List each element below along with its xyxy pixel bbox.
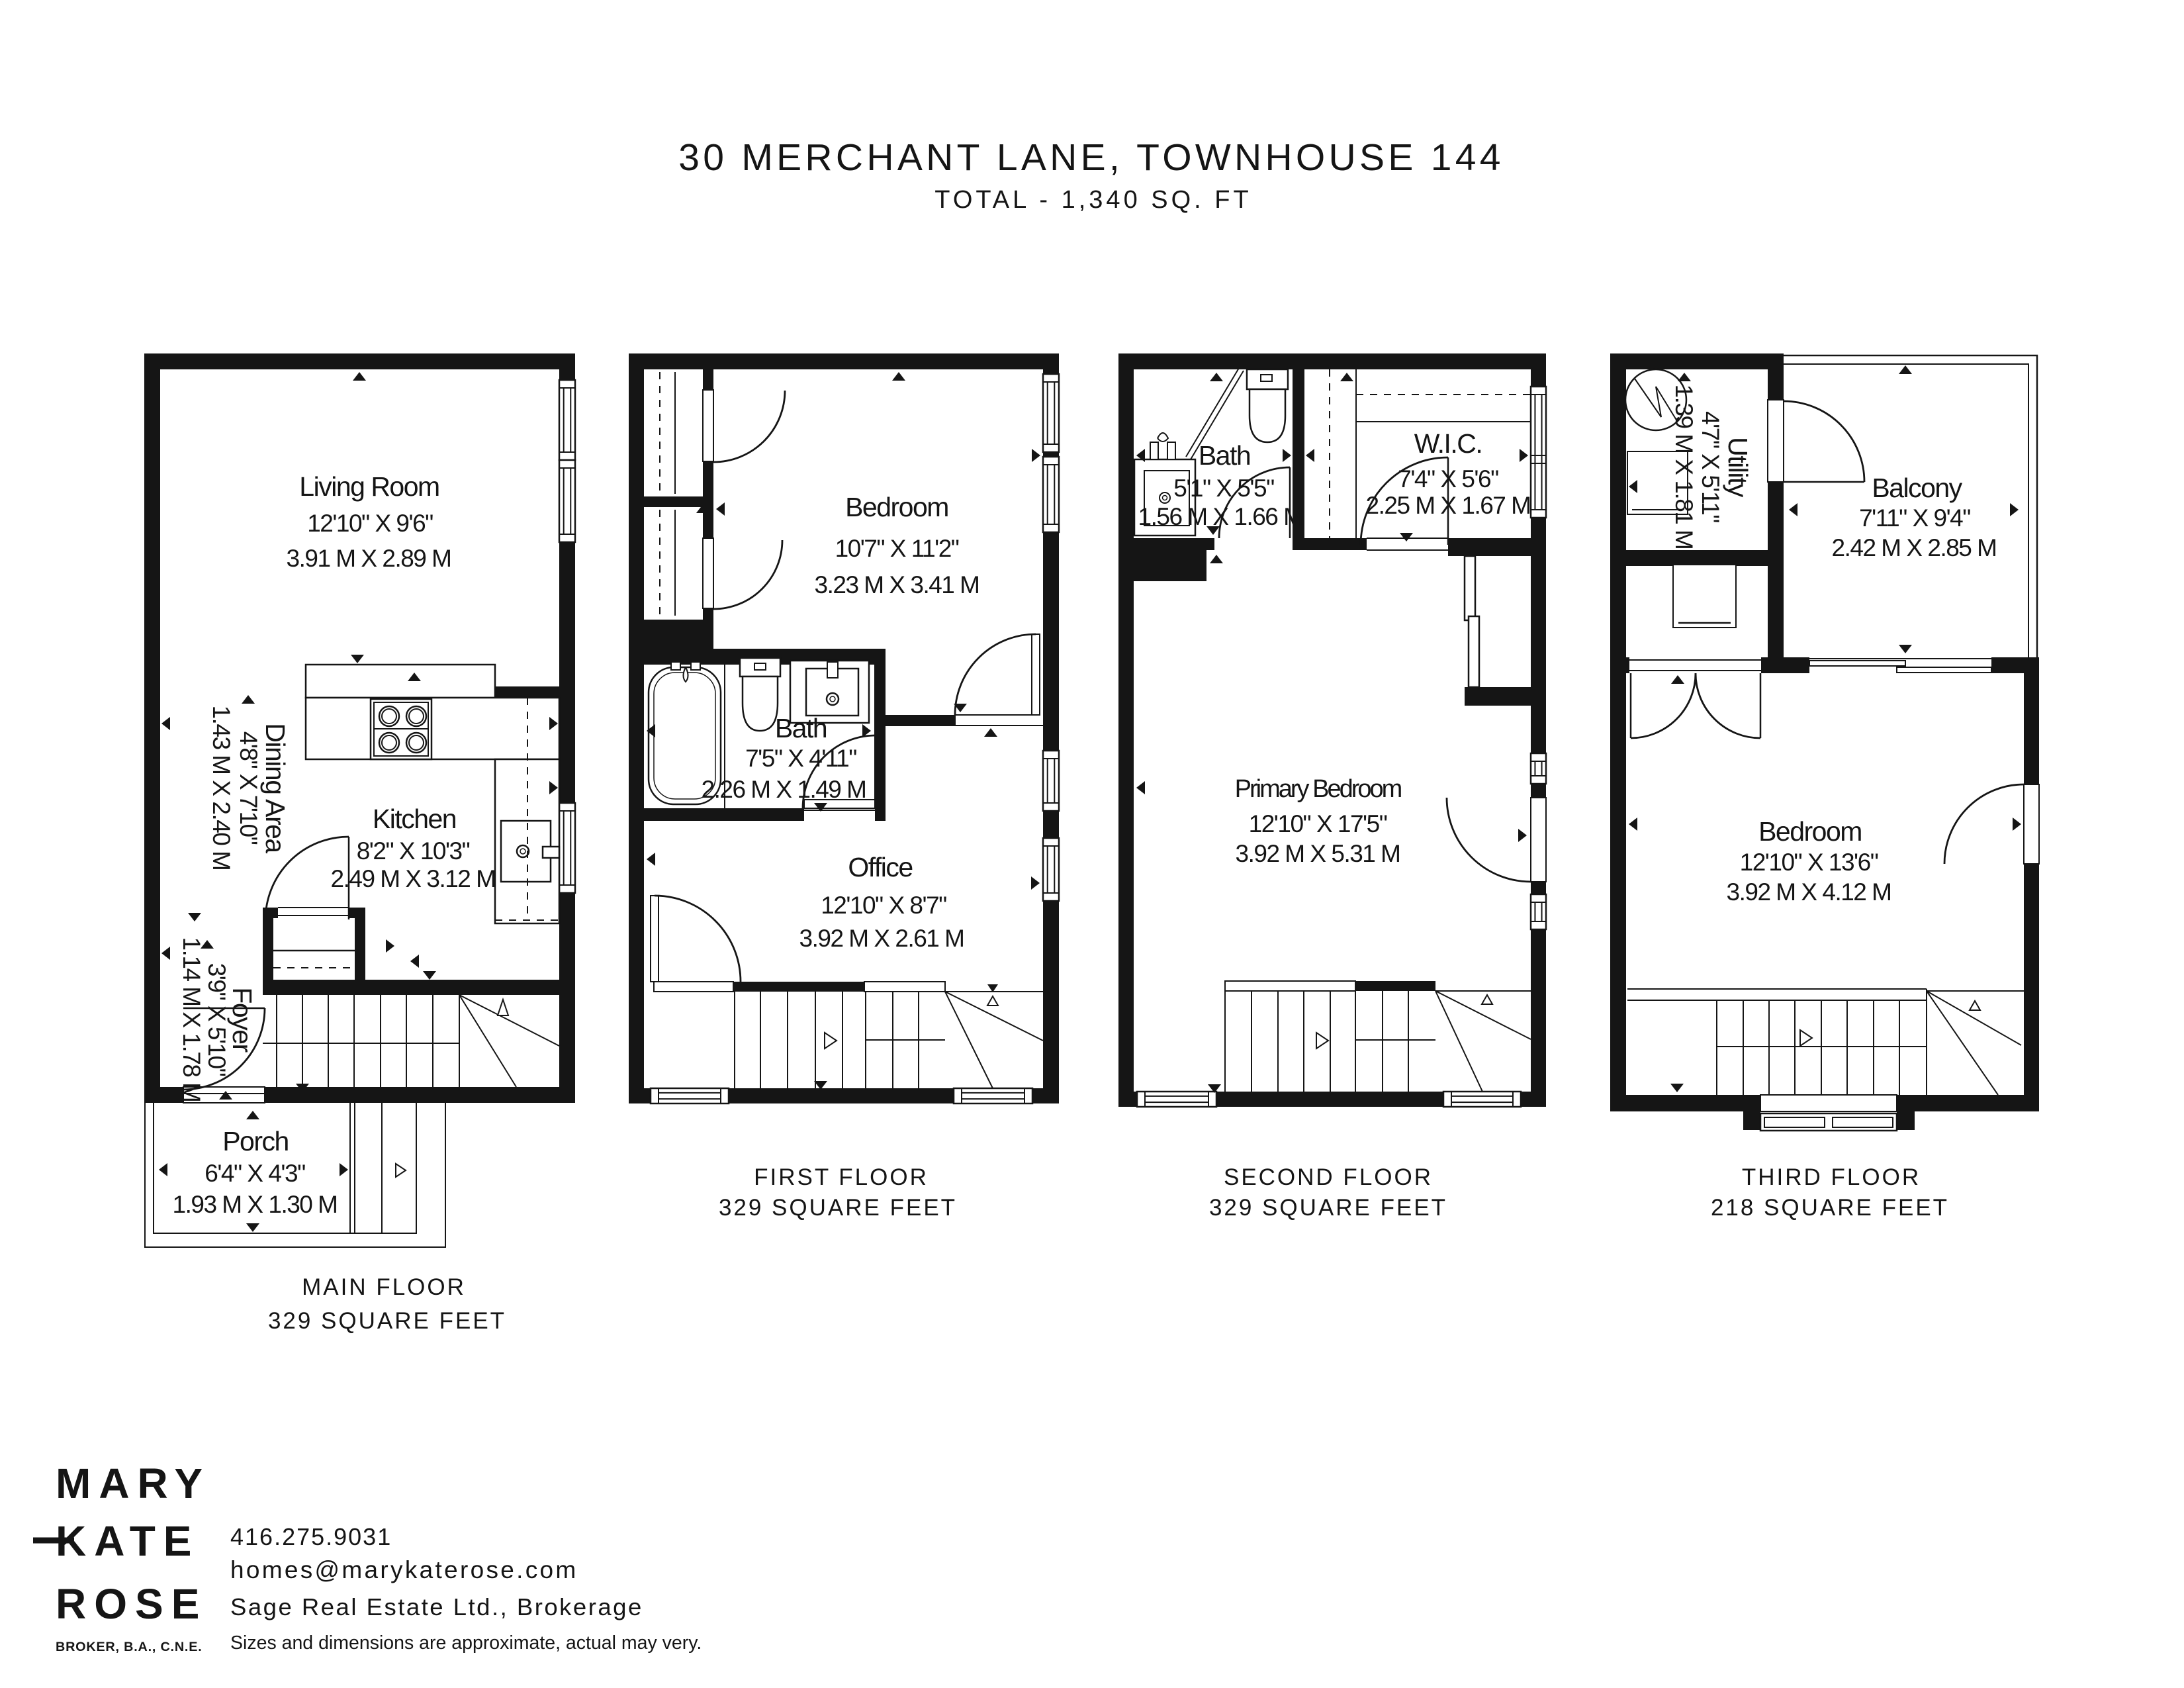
svg-text:1.93 M X 1.30 M: 1.93 M X 1.30 M xyxy=(173,1191,338,1218)
svg-text:30 MERCHANT LANE, TOWNHOUSE 14: 30 MERCHANT LANE, TOWNHOUSE 144 xyxy=(678,136,1504,179)
svg-text:Primary Bedroom: Primary Bedroom xyxy=(1235,775,1402,803)
svg-text:KATE: KATE xyxy=(56,1517,199,1565)
svg-text:2.42 M X 2.85 M: 2.42 M X 2.85 M xyxy=(1832,534,1997,561)
svg-text:Dining Area: Dining Area xyxy=(260,723,291,853)
svg-text:SECOND FLOOR: SECOND FLOOR xyxy=(1224,1164,1433,1190)
svg-text:5'1" X 5'5": 5'1" X 5'5" xyxy=(1173,475,1274,502)
svg-text:12'10" X 17'5": 12'10" X 17'5" xyxy=(1249,810,1387,837)
svg-text:Foyer: Foyer xyxy=(227,987,257,1052)
svg-text:218 SQUARE FEET: 218 SQUARE FEET xyxy=(1711,1195,1949,1221)
svg-text:7'5" X 4'11": 7'5" X 4'11" xyxy=(745,745,856,772)
svg-text:W.I.C.: W.I.C. xyxy=(1414,428,1482,459)
svg-text:Sizes and dimensions are appro: Sizes and dimensions are approximate, ac… xyxy=(230,1632,702,1654)
svg-text:Bedroom: Bedroom xyxy=(845,492,948,522)
svg-text:Porch: Porch xyxy=(222,1126,289,1156)
svg-text:7'11" X 9'4": 7'11" X 9'4" xyxy=(1859,504,1970,532)
svg-text:Bedroom: Bedroom xyxy=(1758,816,1862,847)
svg-text:4'7" X 5'11": 4'7" X 5'11" xyxy=(1697,411,1724,522)
svg-text:3.92 M X 5.31 M: 3.92 M X 5.31 M xyxy=(1236,840,1400,867)
svg-text:329 SQUARE FEET: 329 SQUARE FEET xyxy=(268,1308,506,1334)
svg-text:BROKER, B.A., C.N.E.: BROKER, B.A., C.N.E. xyxy=(56,1640,203,1654)
svg-text:329 SQUARE FEET: 329 SQUARE FEET xyxy=(719,1195,957,1221)
svg-text:12'10" X 13'6": 12'10" X 13'6" xyxy=(1740,849,1878,876)
svg-text:ROSE: ROSE xyxy=(56,1580,207,1628)
svg-text:1.39 M X 1.81 M: 1.39 M X 1.81 M xyxy=(1670,385,1698,549)
svg-text:THIRD FLOOR: THIRD FLOOR xyxy=(1742,1164,1921,1190)
svg-text:MARY: MARY xyxy=(56,1460,210,1507)
svg-text:MAIN FLOOR: MAIN FLOOR xyxy=(302,1274,466,1300)
svg-text:FIRST FLOOR: FIRST FLOOR xyxy=(754,1164,929,1190)
svg-text:3.92 M X 2.61 M: 3.92 M X 2.61 M xyxy=(799,925,964,952)
svg-text:2.26 M X 1.49 M: 2.26 M X 1.49 M xyxy=(702,776,866,803)
svg-text:3.23 M X 3.41 M: 3.23 M X 3.41 M xyxy=(815,571,979,598)
svg-text:homes@marykaterose.com: homes@marykaterose.com xyxy=(230,1556,578,1583)
svg-text:Office: Office xyxy=(848,852,912,882)
svg-text:Sage Real Estate Ltd., Brokera: Sage Real Estate Ltd., Brokerage xyxy=(230,1593,643,1620)
svg-text:12'10" X 8'7": 12'10" X 8'7" xyxy=(821,892,946,919)
svg-text:Living Room: Living Room xyxy=(299,471,439,502)
svg-text:1.14 M X 1.78 M: 1.14 M X 1.78 M xyxy=(178,937,205,1102)
svg-text:2.49 M X 3.12 M: 2.49 M X 3.12 M xyxy=(331,865,496,892)
svg-text:10'7" X 11'2": 10'7" X 11'2" xyxy=(835,535,959,562)
svg-text:Bath: Bath xyxy=(1199,440,1250,471)
svg-text:416.275.9031: 416.275.9031 xyxy=(230,1523,392,1550)
svg-text:Bath: Bath xyxy=(775,713,827,743)
svg-text:3'9" X 5'10": 3'9" X 5'10" xyxy=(203,963,230,1076)
svg-text:2.25 M X 1.67 M: 2.25 M X 1.67 M xyxy=(1366,492,1531,519)
svg-text:4'8" X 7'10": 4'8" X 7'10" xyxy=(235,731,262,845)
svg-text:8'2" X 10'3": 8'2" X 10'3" xyxy=(357,837,470,865)
svg-text:7'4" X 5'6": 7'4" X 5'6" xyxy=(1398,465,1498,492)
svg-text:1.43 M X 2.40 M: 1.43 M X 2.40 M xyxy=(208,706,235,870)
svg-text:Kitchen: Kitchen xyxy=(373,804,456,834)
svg-text:3.92 M X 4.12 M: 3.92 M X 4.12 M xyxy=(1727,878,1891,906)
svg-text:3.91 M X 2.89 M: 3.91 M X 2.89 M xyxy=(287,545,451,572)
svg-text:329 SQUARE FEET: 329 SQUARE FEET xyxy=(1209,1195,1447,1221)
svg-text:TOTAL - 1,340 SQ. FT: TOTAL - 1,340 SQ. FT xyxy=(934,186,1251,214)
svg-text:Utility: Utility xyxy=(1723,437,1753,498)
svg-text:6'4" X 4'3": 6'4" X 4'3" xyxy=(205,1160,305,1187)
svg-text:Balcony: Balcony xyxy=(1872,473,1962,503)
svg-text:1.56 M X 1.66 M: 1.56 M X 1.66 M xyxy=(1138,503,1303,530)
svg-text:12'10" X 9'6": 12'10" X 9'6" xyxy=(307,510,433,537)
